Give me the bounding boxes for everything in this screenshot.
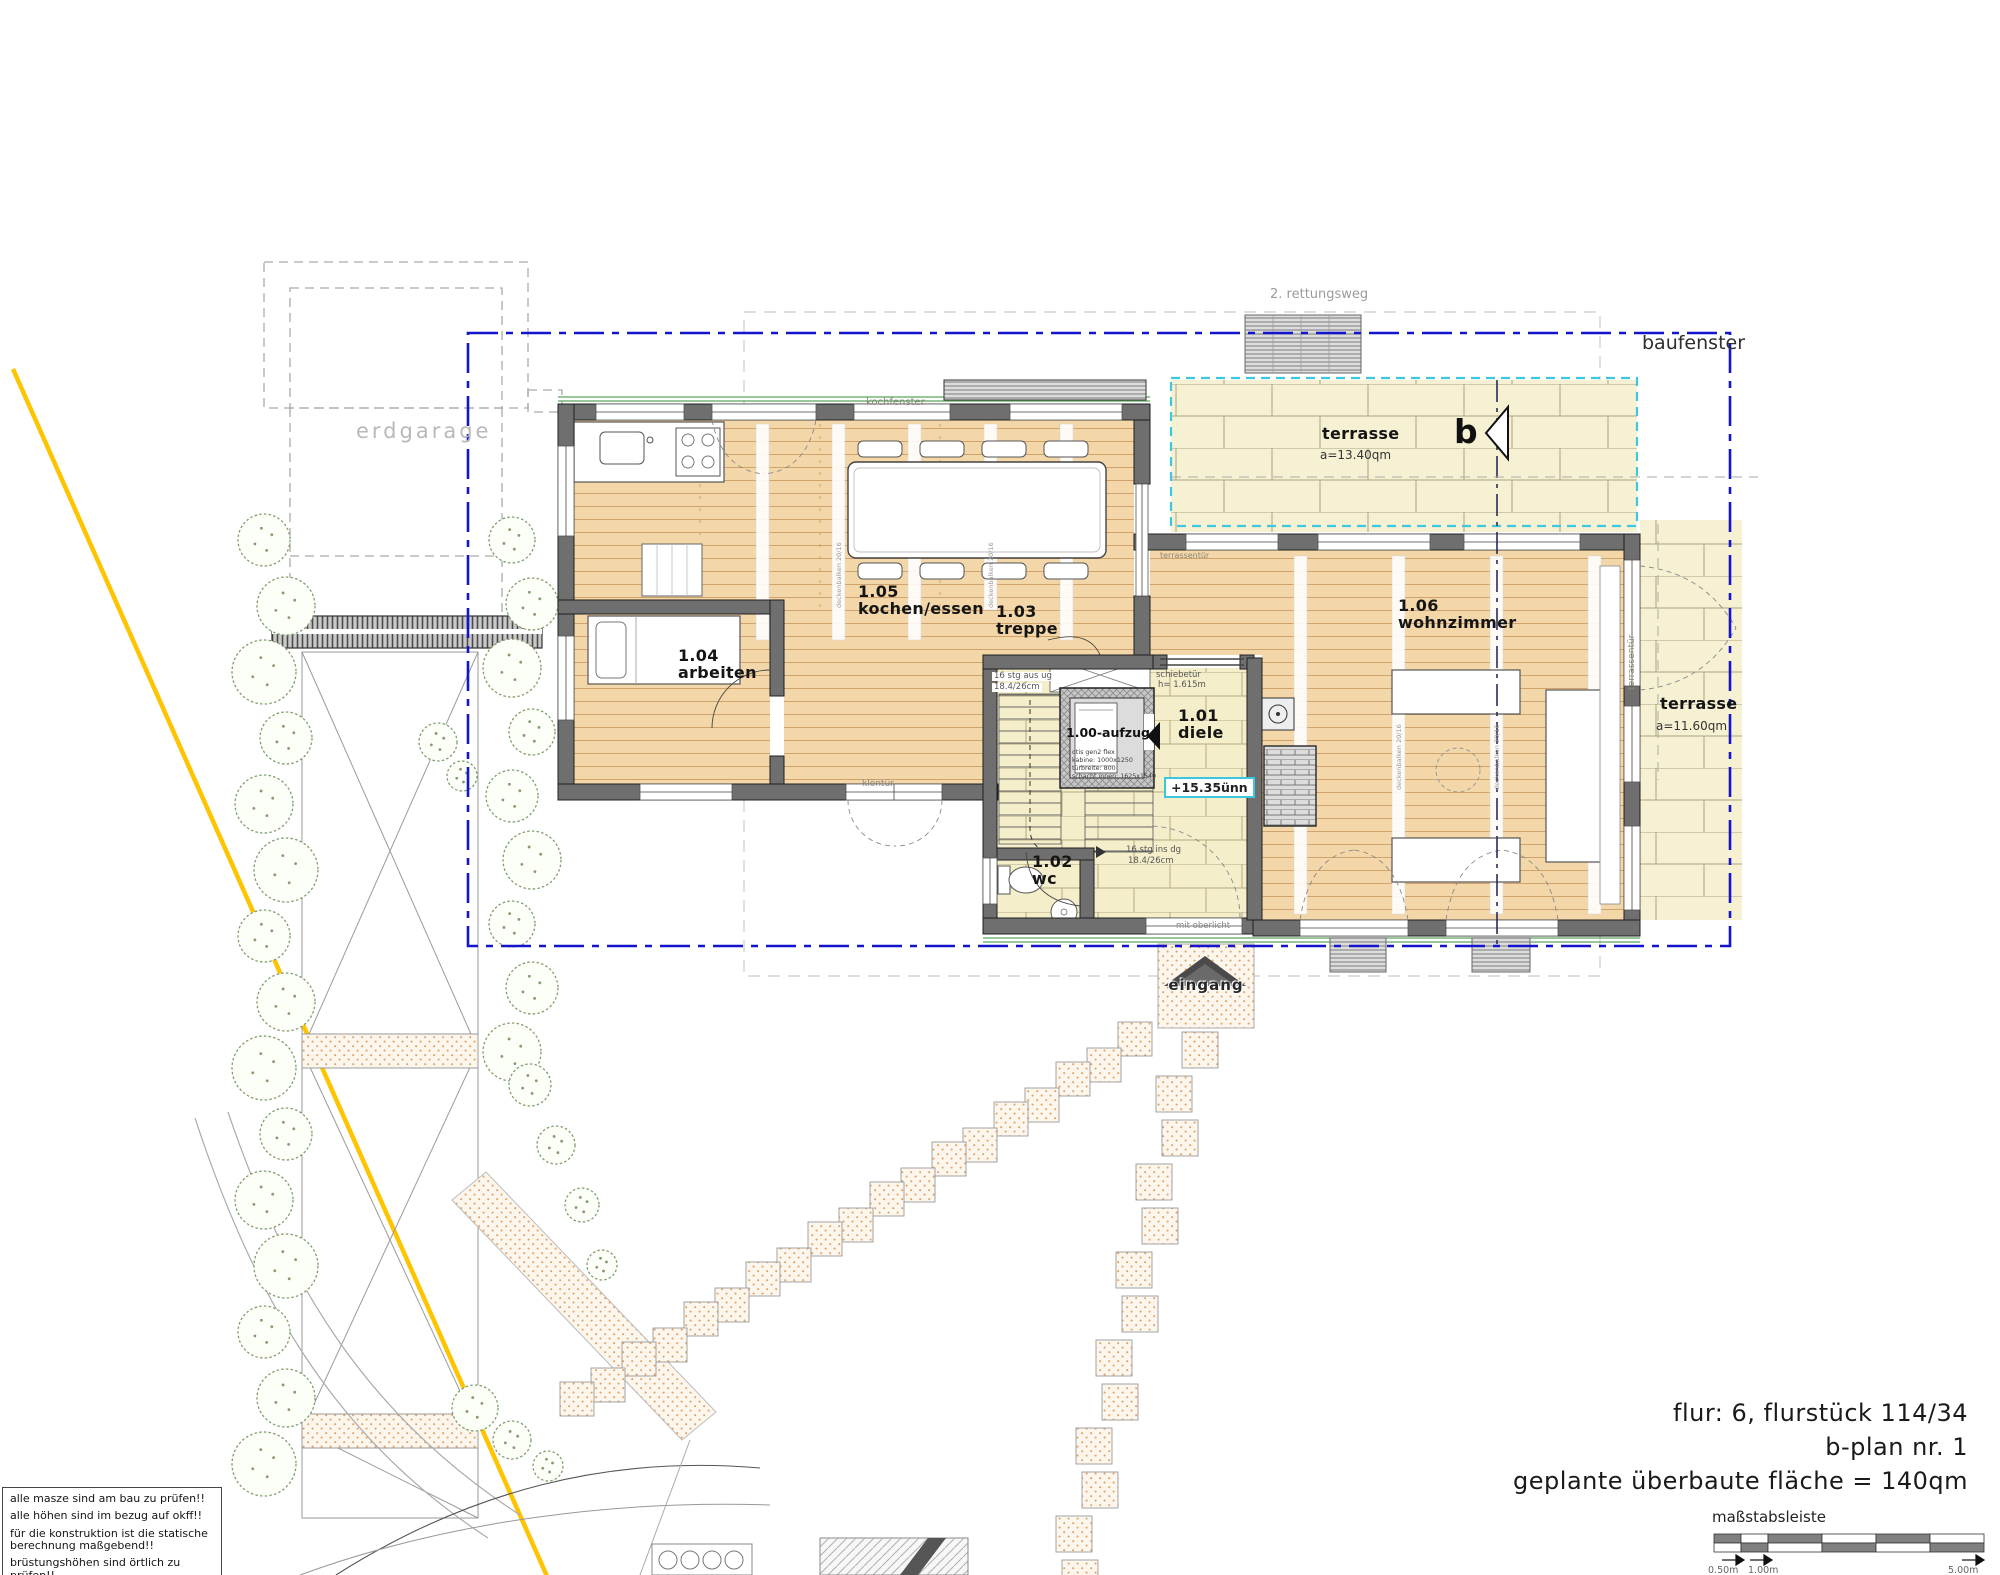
room-wohnzimmer: 1.06 wohnzimmer (1398, 598, 1516, 632)
dining-table (848, 441, 1106, 579)
title-line-flaeche: geplante überbaute fläche = 140qm (1513, 1464, 1968, 1498)
elevator-spec-line: kabine: 1000x1250 (1072, 757, 1156, 765)
note-line: für die konstruktion ist die statische b… (10, 1528, 214, 1553)
baufenster-label: baufenster (1642, 334, 1745, 354)
oberlicht-label: mit oberlicht (1176, 922, 1230, 931)
elevator-specs: otis gen2 flex kabine: 1000x1250 türbrei… (1072, 749, 1156, 781)
terrassentuer-label-right: terrassentür (1628, 635, 1637, 690)
schiebetuer-height: h= 1.615m (1158, 681, 1206, 690)
note-line: brüstungshöhen sind örtlich zu prüfen!! (10, 1557, 214, 1575)
sliding-door (1160, 659, 1244, 665)
note-line: alle höhen sind im bezug auf okff!! (10, 1510, 214, 1522)
terrace-right-label: terrasse (1660, 696, 1737, 713)
schiebetuer-label: schiebetür (1156, 671, 1201, 680)
terrace-top-area: a=13.40qm (1320, 449, 1391, 462)
stairs-dg-label: 16 stg ins dg (1126, 846, 1181, 855)
deckenbalken-label: deckenbalken 20/16 (1494, 724, 1501, 790)
floorplan-canvas: erdgarage 2. rettungsweg baufenster terr… (0, 0, 2000, 1575)
deckenbalken-label: deckenbalken 20/16 (836, 542, 843, 608)
terrace-top-label: terrasse (1322, 426, 1399, 443)
kochfenster-label: kochfenster (866, 398, 925, 409)
notes-box: alle masze sind am bau zu prüfen!! alle … (2, 1487, 222, 1575)
title-block: flur: 6, flurstück 114/34 b-plan nr. 1 g… (1513, 1396, 1968, 1498)
scale-tick-050: 0.50m (1708, 1565, 1738, 1575)
level-tag: +15.35ünn (1164, 777, 1255, 798)
scale-tick-100: 1.00m (1748, 1565, 1778, 1575)
scale-tick-500: 5.00m (1948, 1565, 1978, 1575)
title-line-flur: flur: 6, flurstück 114/34 (1513, 1396, 1968, 1430)
room-wohnzimmer-name: wohnzimmer (1398, 615, 1516, 632)
note-line: alle masze sind am bau zu prüfen!! (10, 1493, 214, 1505)
title-line-bplan: b-plan nr. 1 (1513, 1430, 1968, 1464)
room-diele: 1.01 diele (1178, 708, 1224, 742)
eingang-label: eingang (1158, 976, 1254, 994)
stairs-up-dim: 18.4/26cm (992, 683, 1042, 692)
room-wc-name: wc (1032, 871, 1073, 888)
deckenbalken-label: deckenbalken 20/16 (1396, 724, 1403, 790)
garden-structures (652, 1538, 968, 1575)
room-kochen-essen: 1.05 kochen/essen (858, 584, 984, 618)
scale-bar (1714, 1534, 1984, 1565)
room-arbeiten-name: arbeiten (678, 665, 757, 682)
terrace-right-area: a=11.60qm (1656, 720, 1727, 733)
terrassentuer-label-top: terrassentür (1160, 552, 1209, 560)
room-treppe: 1.03 treppe (996, 604, 1058, 638)
elevator-spec-line: türbreite: 800 (1072, 765, 1156, 773)
deckenbalken-label: deckenbalken 20/16 (988, 542, 995, 608)
stairs-up-label: 16 stg aus ug (992, 672, 1054, 681)
floorplan-drawing (0, 0, 2000, 1575)
elevator-spec-line: otis gen2 flex (1072, 749, 1156, 757)
room-treppe-name: treppe (996, 621, 1058, 638)
erdgarage-label: erdgarage (356, 420, 491, 442)
kloentuer-label: klöntür (862, 780, 894, 789)
room-wc: 1.02 wc (1032, 854, 1073, 888)
room-aufzug: 1.00-aufzug (1066, 726, 1150, 739)
room-arbeiten: 1.04 arbeiten (678, 648, 757, 682)
section-marker-b: b (1454, 412, 1478, 451)
stairs-dg-dim: 18.4/26cm (1128, 857, 1174, 866)
rettungsweg-label: 2. rettungsweg (1270, 288, 1368, 302)
elevator-spec-line: schacht innen: 1625x1540 (1072, 773, 1156, 781)
room-diele-name: diele (1178, 725, 1224, 742)
room-kochen-name: kochen/essen (858, 601, 984, 618)
scale-bar-label: maßstabsleiste (1712, 1510, 1826, 1526)
